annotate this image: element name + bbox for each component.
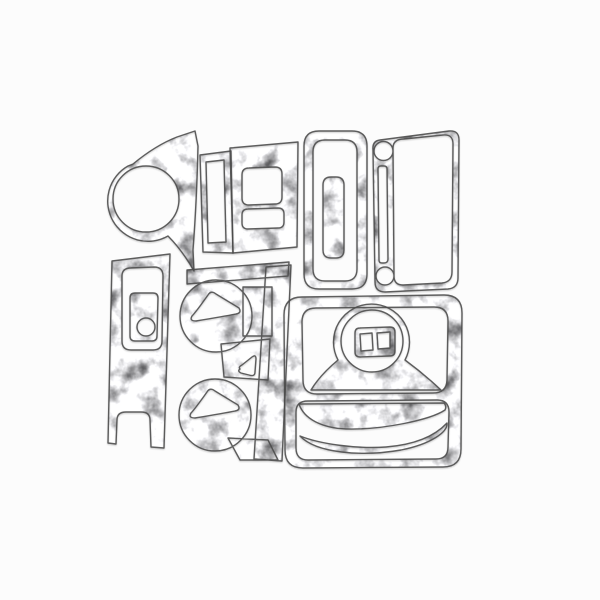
trim-kit-product-photo [0, 0, 600, 600]
photo-canvas [0, 0, 600, 600]
